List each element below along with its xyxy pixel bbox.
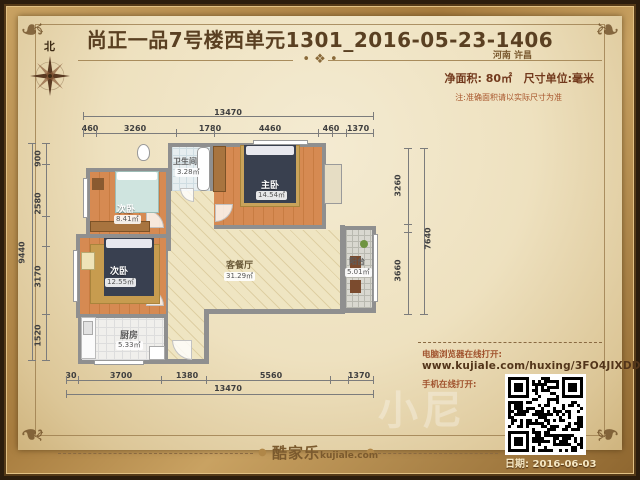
- room-label-living: 客餐厅: [226, 258, 253, 271]
- wall-segment: [340, 308, 376, 313]
- open-mobile-label: 手机在线打开:: [422, 378, 476, 390]
- room-area-living: 31.29㎡: [224, 272, 255, 281]
- dim-tick: [42, 360, 50, 361]
- date-label: 日期: 2016-06-03: [505, 455, 596, 470]
- info-separator: [418, 342, 602, 343]
- open-pc-label: 电脑浏览器在线打开:: [422, 348, 502, 360]
- logo-dot: ●: [258, 447, 267, 458]
- dim-tick: [96, 129, 97, 137]
- room-area-balcony: 5.01㎡: [345, 268, 372, 277]
- dim-bottom-seg: 1380: [176, 371, 198, 380]
- plant: [360, 240, 368, 248]
- logo-domain: kujiale.com: [320, 451, 378, 461]
- dim-top-total: 13470: [214, 108, 242, 117]
- parchment-background: ❧ ❧ ❧ ❧ 尚正一品7号楼西单元1301_2016-05-23-1406 河…: [18, 16, 622, 450]
- dim-tick: [404, 148, 412, 149]
- dim-line-right-chain: [408, 148, 409, 314]
- bed-pillows: [246, 146, 294, 155]
- dim-tick: [42, 216, 50, 217]
- dim-line-bottom-total: [66, 394, 374, 395]
- room-area-bathroom: 3.28㎡: [175, 168, 202, 177]
- dim-tick: [176, 129, 177, 137]
- dim-top-seg: 1370: [347, 124, 369, 133]
- dim-tick: [318, 129, 319, 137]
- dim-tick: [332, 129, 333, 137]
- balcony-chair: [350, 280, 361, 293]
- dim-right-seg: 3660: [394, 254, 403, 288]
- window: [94, 360, 144, 365]
- dim-line-left-chain: [46, 143, 47, 360]
- dim-tick: [373, 390, 374, 398]
- dim-tick: [78, 376, 79, 384]
- wall-segment: [204, 309, 209, 363]
- dim-tick: [346, 129, 347, 137]
- dim-line-top-chain: [83, 133, 373, 134]
- dim-left-seg: 3170: [34, 260, 43, 294]
- dim-top-seg: 3260: [124, 124, 146, 133]
- dim-tick: [404, 232, 412, 233]
- dim-tick: [206, 376, 207, 384]
- dim-tick: [404, 314, 412, 315]
- dim-tick: [373, 129, 374, 137]
- dim-tick: [42, 164, 50, 165]
- wall-segment: [204, 309, 345, 314]
- dim-tick: [373, 376, 374, 384]
- bay-window: [324, 164, 342, 204]
- kujiale-logo: 酷家乐kujiale.com: [272, 442, 378, 463]
- dim-left-seg: 1520: [34, 319, 43, 353]
- room-label-master: 主卧: [261, 178, 279, 191]
- dim-tick: [28, 143, 36, 144]
- dim-left-seg: 900: [34, 142, 43, 176]
- wall-segment: [166, 359, 209, 364]
- dim-left-total: 9440: [18, 236, 27, 270]
- room-area-master: 14.54㎡: [256, 191, 287, 200]
- qr-code: [505, 374, 586, 455]
- room-label-balcony: 阳台: [349, 256, 365, 267]
- dim-bottom-seg: 3700: [110, 371, 132, 380]
- floorplan-share-image: ❧ ❧ ❧ ❧ 尚正一品7号楼西单元1301_2016-05-23-1406 河…: [0, 0, 640, 480]
- window: [83, 178, 88, 218]
- room-label-bedroom-bottom: 次卧: [110, 264, 128, 277]
- dim-tick: [42, 143, 50, 144]
- sink: [83, 321, 93, 335]
- dim-tick: [420, 148, 428, 149]
- room-area-kitchen: 5.33㎡: [116, 341, 143, 350]
- dim-bottom-seg: 1370: [348, 371, 370, 380]
- share-url: www.kujiale.com/huxing/3FO4JIXDDNP0: [422, 360, 640, 372]
- dim-right-total: 7640: [424, 222, 433, 256]
- dim-tick: [66, 376, 67, 384]
- dim-top-seg: 4460: [259, 124, 281, 133]
- logo-chinese: 酷家乐: [272, 444, 320, 462]
- dim-tick: [420, 314, 428, 315]
- logo-dash-left: [58, 453, 253, 454]
- dim-tick: [28, 360, 36, 361]
- dim-tick: [373, 112, 374, 120]
- bed-pillows: [106, 239, 152, 248]
- dim-tick: [330, 376, 331, 384]
- dim-tick: [42, 246, 50, 247]
- room-label-kitchen: 厨房: [120, 328, 138, 341]
- dim-tick: [83, 112, 84, 120]
- room-area-bedroom-top: 8.41㎡: [114, 215, 141, 224]
- dim-tick: [161, 376, 162, 384]
- nightstand: [92, 178, 104, 190]
- dim-tick: [83, 129, 84, 137]
- room-label-bedroom-top: 次卧: [117, 202, 135, 215]
- dim-tick: [214, 129, 215, 137]
- window: [73, 250, 78, 302]
- dim-bottom-seg: 5560: [260, 371, 282, 380]
- toilet: [137, 144, 150, 161]
- wardrobe: [213, 146, 226, 192]
- dim-tick: [404, 224, 412, 225]
- window: [373, 234, 378, 302]
- dim-tick: [42, 314, 50, 315]
- dim-bottom-seg: 30: [65, 371, 76, 380]
- dim-tick: [66, 390, 67, 398]
- stove: [149, 346, 165, 360]
- dim-top-seg: 1780: [199, 124, 221, 133]
- dim-line-bottom-chain: [66, 380, 374, 381]
- dim-right-seg: 3260: [394, 169, 403, 203]
- room-area-bedroom-bottom: 12.55㎡: [105, 278, 136, 287]
- logo-dash-right: [378, 453, 498, 454]
- armchair: [81, 252, 95, 270]
- room-label-bathroom: 卫生间: [173, 156, 197, 167]
- wall-segment: [166, 191, 171, 251]
- dim-top-seg: 460: [323, 124, 340, 133]
- bed-pillows: [117, 172, 157, 180]
- dim-tick: [348, 376, 349, 384]
- dim-bottom-total: 13470: [214, 384, 242, 393]
